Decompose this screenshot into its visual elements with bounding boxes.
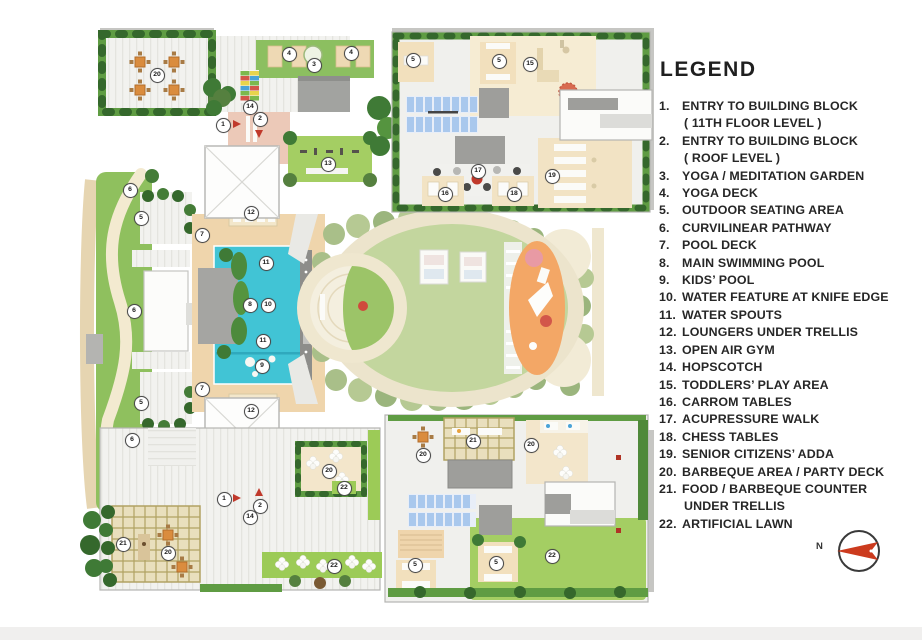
- legend-item: 3.YOGA / MEDITATION GARDEN: [659, 168, 921, 185]
- senior-adda: [538, 138, 632, 208]
- legend-item-number: 2.: [659, 133, 682, 150]
- legend-item-label: CHESS TABLES: [682, 429, 917, 446]
- legend-item: 5.OUTDOOR SEATING AREA: [659, 202, 921, 219]
- legend-item-label: FOOD / BARBEQUE COUNTER: [682, 481, 917, 498]
- legend-item: 15.TODDLERS’ PLAY AREA: [659, 377, 921, 394]
- legend-item-label: ENTRY TO BUILDING BLOCK: [682, 133, 917, 150]
- legend-item: 17.ACUPRESSURE WALK: [659, 411, 921, 428]
- legend-item: 1.ENTRY TO BUILDING BLOCK ( 11TH FLOOR L…: [659, 98, 921, 133]
- legend-item: 18.CHESS TABLES: [659, 429, 921, 446]
- page-bottom-band: [0, 627, 922, 640]
- legend-item-label: SENIOR CITIZENS’ ADDA: [682, 446, 917, 463]
- legend-item-label-line2: ( ROOF LEVEL ): [684, 150, 921, 167]
- legend-item-label: CARROM TABLES: [682, 394, 917, 411]
- legend-item: 13.OPEN AIR GYM: [659, 342, 921, 359]
- legend-item: 7.POOL DECK: [659, 237, 921, 254]
- legend-title: LEGEND: [660, 58, 921, 82]
- legend-item: 14.HOPSCOTCH: [659, 359, 921, 376]
- compass: N: [816, 528, 886, 574]
- legend-list: 1.ENTRY TO BUILDING BLOCK ( 11TH FLOOR L…: [659, 98, 921, 533]
- legend-item: 6.CURVILINEAR PATHWAY: [659, 220, 921, 237]
- legend-item-label: MAIN SWIMMING POOL: [682, 255, 917, 272]
- compass-north-label: N: [816, 541, 823, 552]
- legend-item-label: ACUPRESSURE WALK: [682, 411, 917, 428]
- legend-item-number: 19.: [659, 446, 682, 463]
- legend-item-number: 20.: [659, 464, 682, 481]
- floor-plan-page: 2043414121355151716181912711810119712656…: [0, 0, 922, 640]
- legend-item: 11.WATER SPOUTS: [659, 307, 921, 324]
- legend-item-label-line2: UNDER TRELLIS: [684, 498, 921, 515]
- legend-item-label: OUTDOOR SEATING AREA: [682, 202, 917, 219]
- legend-item-number: 1.: [659, 98, 682, 115]
- legend-item-label: YOGA / MEDITATION GARDEN: [682, 168, 917, 185]
- legend-item-number: 15.: [659, 377, 682, 394]
- legend-item-label: HOPSCOTCH: [682, 359, 917, 376]
- legend-item-number: 14.: [659, 359, 682, 376]
- legend-item-number: 7.: [659, 237, 682, 254]
- legend-item-number: 13.: [659, 342, 682, 359]
- legend-item: 19.SENIOR CITIZENS’ ADDA: [659, 446, 921, 463]
- legend-item-number: 10.: [659, 289, 682, 306]
- legend-item: 12.LOUNGERS UNDER TRELLIS: [659, 324, 921, 341]
- legend-item-label-line2: ( 11TH FLOOR LEVEL ): [684, 115, 921, 132]
- legend-item-number: 12.: [659, 324, 682, 341]
- trellis-bottom-right: [444, 418, 514, 460]
- legend-item-label: TODDLERS’ PLAY AREA: [682, 377, 917, 394]
- legend-item-number: 21.: [659, 481, 682, 498]
- legend-item: 16.CARROM TABLES: [659, 394, 921, 411]
- legend-item-number: 18.: [659, 429, 682, 446]
- legend-item-number: 11.: [659, 307, 682, 324]
- legend-item-number: 22.: [659, 516, 682, 533]
- legend-item: 10.WATER FEATURE AT KNIFE EDGE: [659, 289, 921, 306]
- legend-item-label: ENTRY TO BUILDING BLOCK: [682, 98, 917, 115]
- legend-item-number: 4.: [659, 185, 682, 202]
- legend-item-number: 8.: [659, 255, 682, 272]
- legend-item: 8.MAIN SWIMMING POOL: [659, 255, 921, 272]
- legend-item-label: YOGA DECK: [682, 185, 917, 202]
- legend-item-label: POOL DECK: [682, 237, 917, 254]
- legend-item-number: 9.: [659, 272, 682, 289]
- central-garden: [288, 207, 604, 411]
- legend-item: 2.ENTRY TO BUILDING BLOCK ( ROOF LEVEL ): [659, 133, 921, 168]
- bottom-left-block: [80, 428, 382, 592]
- compass-icon: [834, 528, 882, 574]
- bottom-right-block: [385, 415, 654, 602]
- legend-item-label: BARBEQUE AREA / PARTY DECK: [682, 464, 917, 481]
- legend-panel: LEGEND 1.ENTRY TO BUILDING BLOCK ( 11TH …: [659, 58, 921, 533]
- hopscotch-top: [240, 70, 259, 103]
- legend-item-label: LOUNGERS UNDER TRELLIS: [682, 324, 917, 341]
- legend-item-label: KIDS’ POOL: [682, 272, 917, 289]
- legend-item-number: 17.: [659, 411, 682, 428]
- legend-item: 21.FOOD / BARBEQUE COUNTER UNDER TRELLIS: [659, 481, 921, 516]
- legend-item: 20.BARBEQUE AREA / PARTY DECK: [659, 464, 921, 481]
- legend-item-label: WATER FEATURE AT KNIFE EDGE: [682, 289, 917, 306]
- legend-item-number: 16.: [659, 394, 682, 411]
- legend-item-number: 5.: [659, 202, 682, 219]
- legend-item-number: 6.: [659, 220, 682, 237]
- trellis-bottom-left: [99, 505, 200, 587]
- legend-item: 4.YOGA DECK: [659, 185, 921, 202]
- legend-item-label: CURVILINEAR PATHWAY: [682, 220, 917, 237]
- legend-item-number: 3.: [659, 168, 682, 185]
- legend-item-label: OPEN AIR GYM: [682, 342, 917, 359]
- legend-item-label: WATER SPOUTS: [682, 307, 917, 324]
- legend-item: 9.KIDS’ POOL: [659, 272, 921, 289]
- top-right-block: [392, 28, 654, 212]
